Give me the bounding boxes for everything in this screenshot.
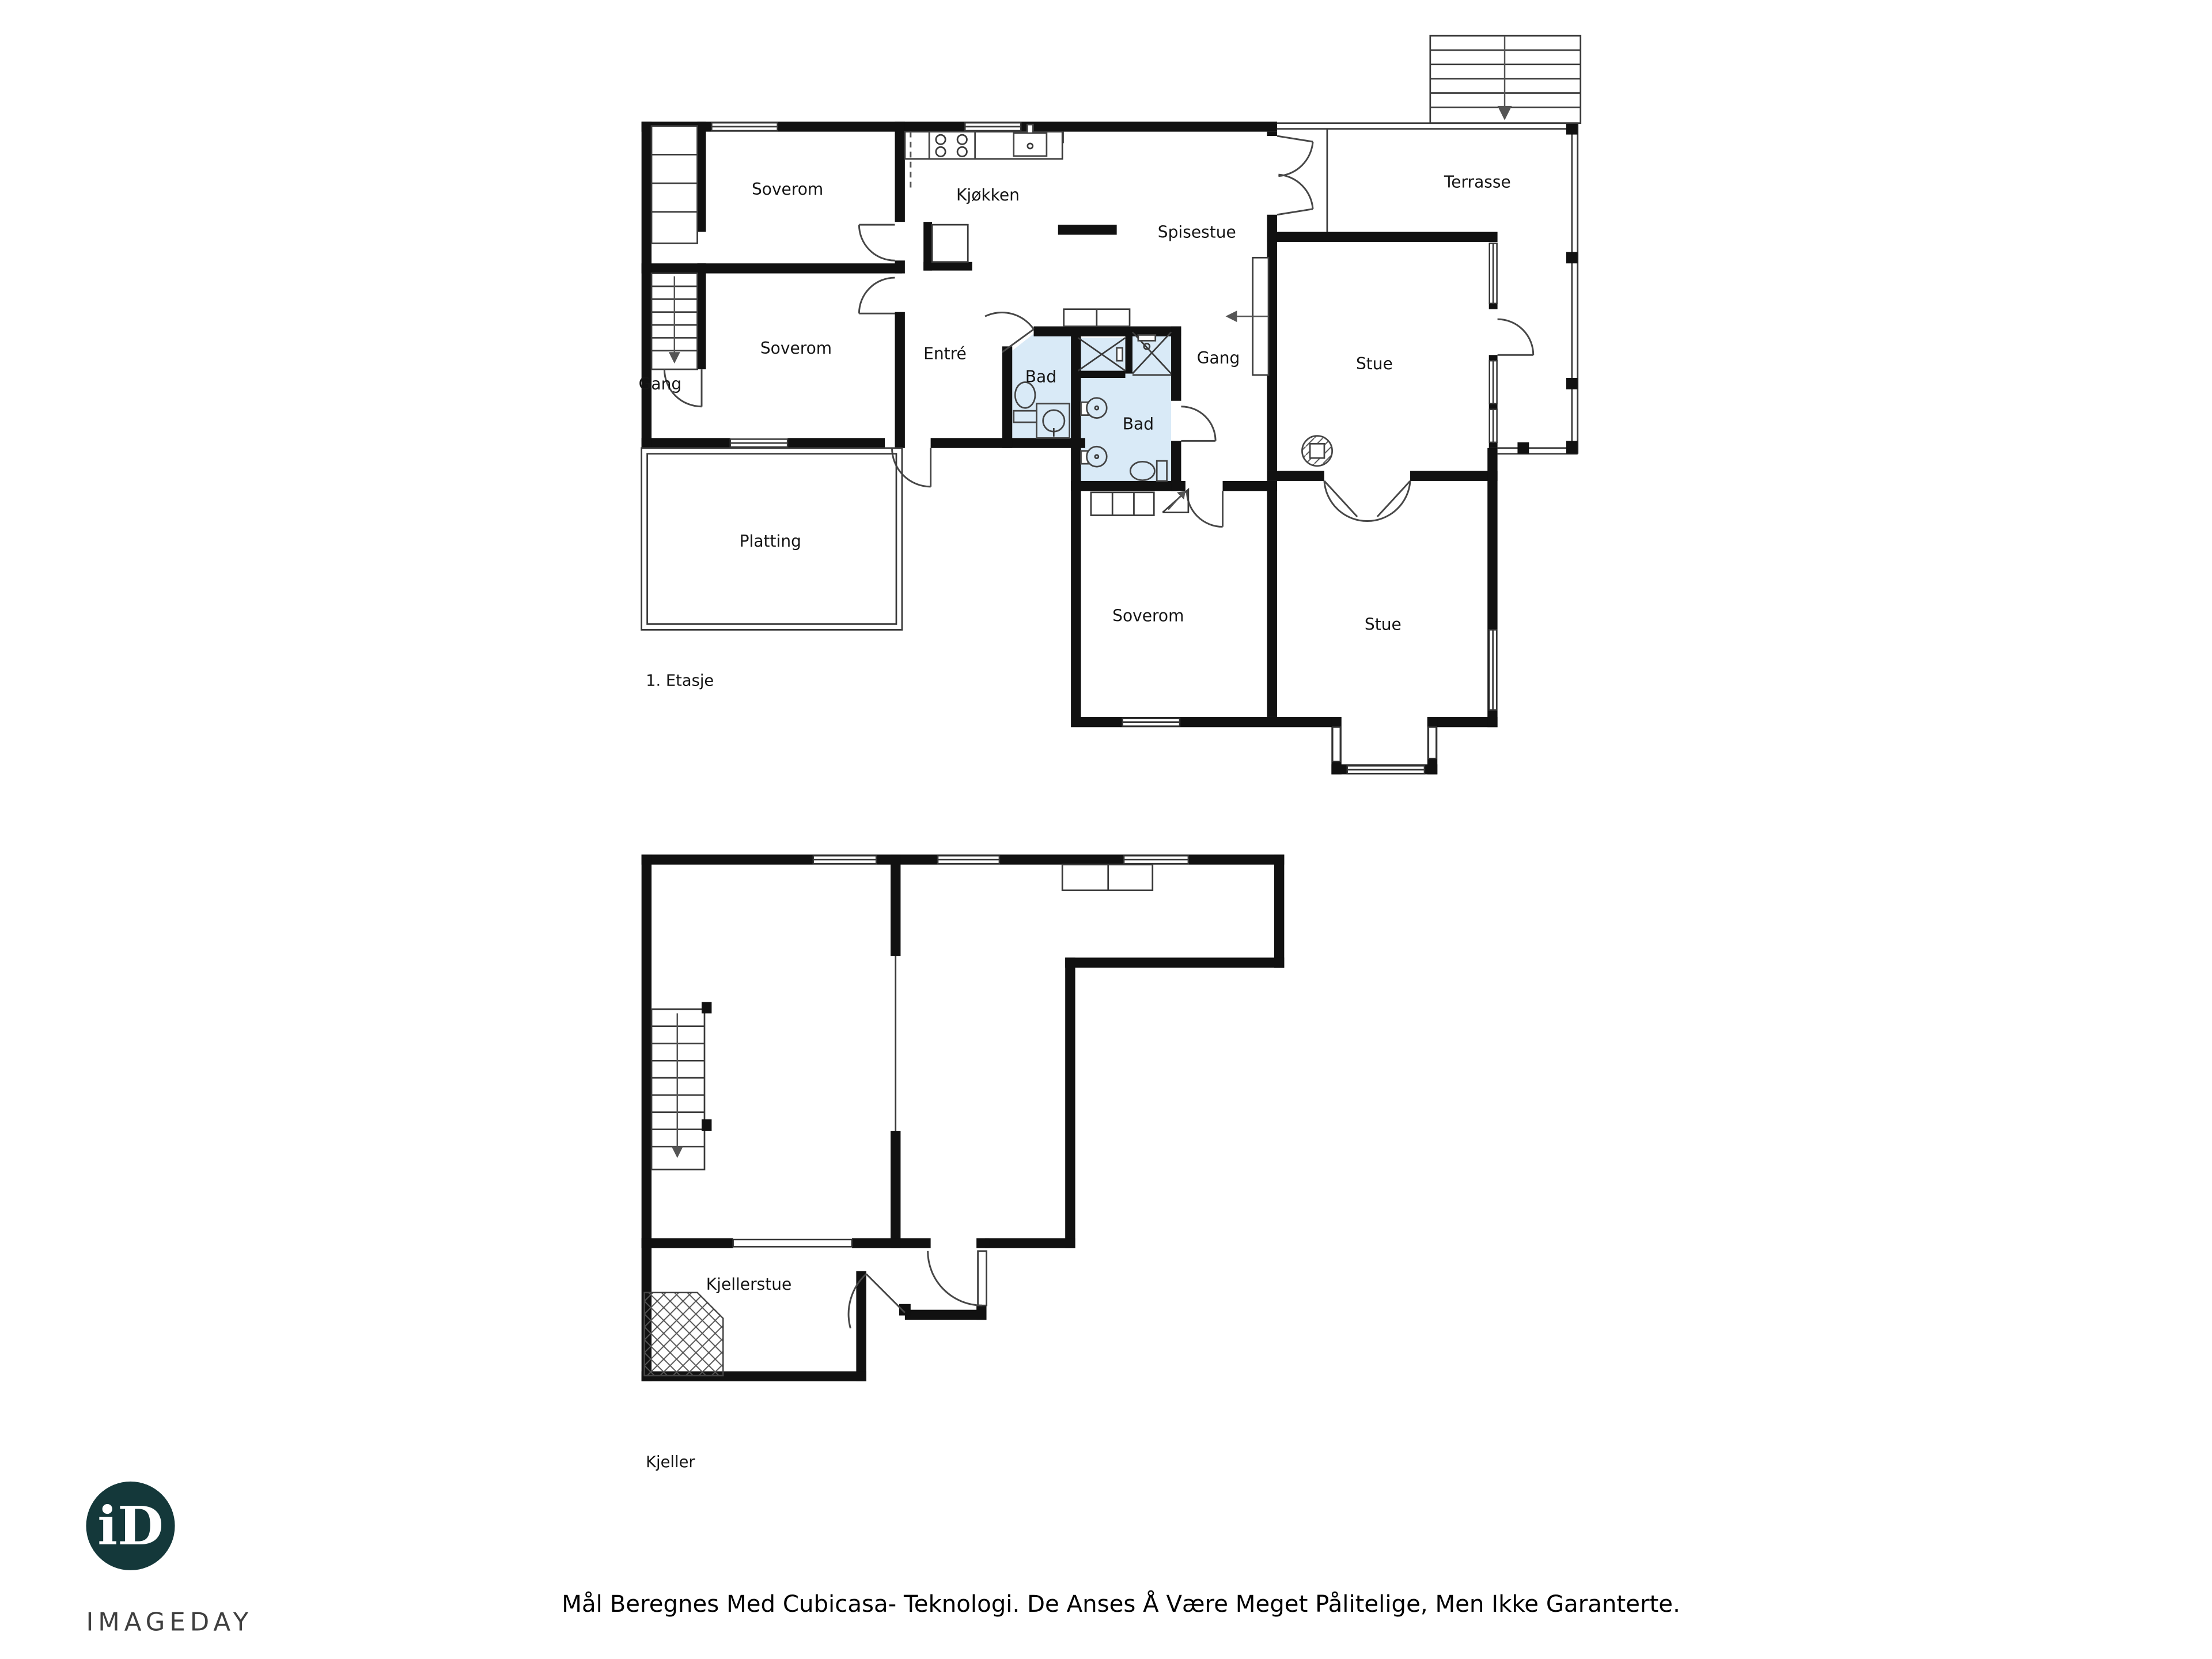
room-label-soverom-lower: Soverom <box>1112 606 1184 625</box>
disclaimer-text: Mål Beregnes Med Cubicasa- Teknologi. De… <box>562 1590 1680 1618</box>
basement-title: Kjeller <box>646 1453 695 1471</box>
room-label-stue-lower: Stue <box>1365 615 1402 634</box>
room-label-soverom-2: Soverom <box>760 339 832 358</box>
floor-1-plan: Soverom Soverom Gang Entré Kjøkken Spise… <box>639 36 1581 774</box>
entry-stairs <box>652 274 698 369</box>
room-label-entre: Entré <box>923 344 967 363</box>
basement-stairs <box>652 1002 711 1169</box>
room-label-stue-upper: Stue <box>1356 354 1393 373</box>
room-label-gang-mid: Gang <box>1197 349 1240 368</box>
floorplan-page: Soverom Soverom Gang Entré Kjøkken Spise… <box>0 0 2212 1659</box>
imageday-logo: iD IMAGEDAY <box>86 1482 253 1637</box>
room-label-terrasse: Terrasse <box>1444 173 1511 192</box>
room-label-spisestue: Spisestue <box>1158 222 1236 241</box>
basement-cabinet <box>1062 865 1153 891</box>
room-label-bad-1: Bad <box>1025 367 1056 386</box>
terrace-stairs <box>1430 36 1581 123</box>
floor-1-title: 1. Etasje <box>646 672 714 690</box>
chimney-foundation <box>645 1293 724 1376</box>
room-label-kjellerstue: Kjellerstue <box>706 1275 792 1294</box>
fireplace-icon <box>1302 436 1332 466</box>
logo-monogram: iD <box>97 1495 164 1557</box>
basement-plan: Kjellerstue Kjeller <box>642 854 1285 1471</box>
room-label-platting: Platting <box>740 532 801 551</box>
room-label-kjokken: Kjøkken <box>956 185 1020 204</box>
room-label-soverom-1: Soverom <box>752 180 823 199</box>
windows-basement <box>733 855 1188 1247</box>
logo-wordmark: IMAGEDAY <box>86 1608 253 1637</box>
room-label-gang-left: Gang <box>639 374 682 393</box>
kitchen-island <box>1058 225 1117 234</box>
terrace-deck <box>1277 123 1578 454</box>
floorplan-canvas: Soverom Soverom Gang Entré Kjøkken Spise… <box>0 0 2212 1659</box>
stove-icon <box>929 132 975 159</box>
room-label-bad-2: Bad <box>1123 414 1154 433</box>
